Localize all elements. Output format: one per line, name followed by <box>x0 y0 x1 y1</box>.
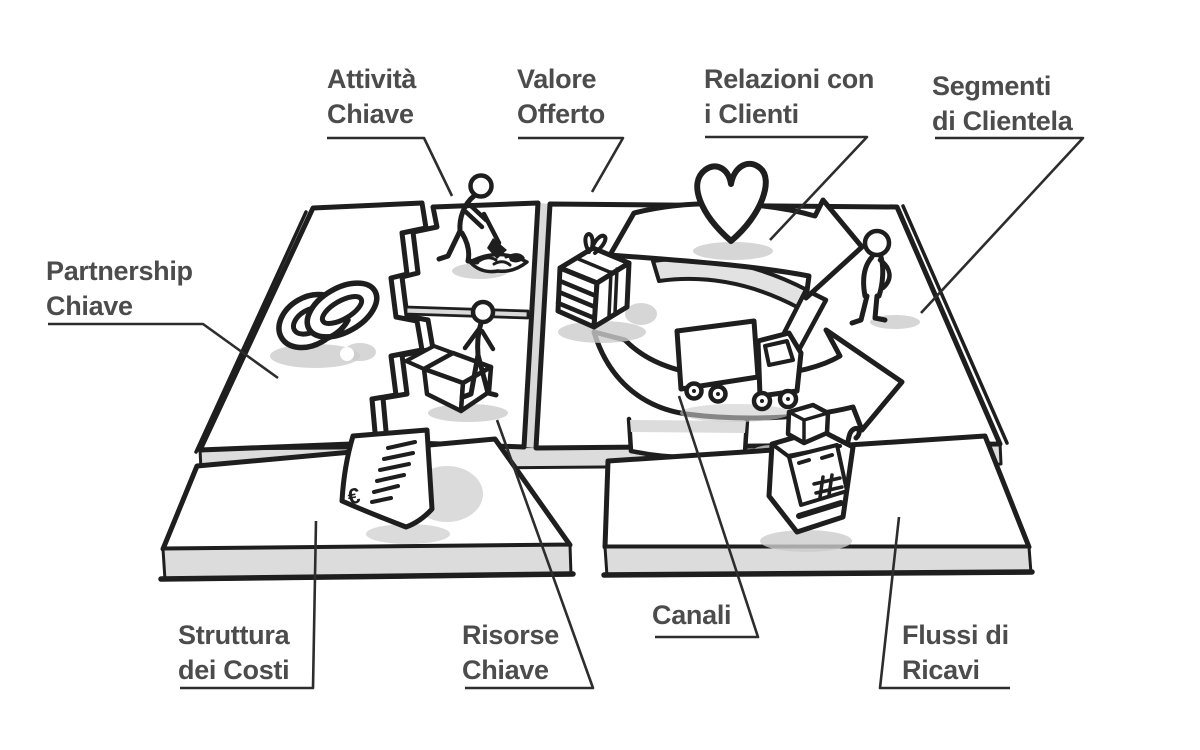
label-line: dei Costi <box>178 653 289 688</box>
label-valore-offerto: Valore Offerto <box>517 62 605 132</box>
label-line: Chiave <box>327 97 416 132</box>
label-line: Attività <box>327 62 416 97</box>
label-line: Risorse <box>462 618 559 653</box>
label-segmenti-clientela: Segmenti di Clientela <box>932 69 1072 139</box>
label-line: Struttura <box>178 618 289 653</box>
label-partnership-chiave: Partnership Chiave <box>46 254 193 324</box>
business-model-canvas-sketch: € <box>0 0 1200 750</box>
label-line: Valore <box>517 62 605 97</box>
label-struttura-costi: Struttura dei Costi <box>178 618 289 688</box>
label-line: Segmenti <box>932 69 1072 104</box>
delivery-truck-icon <box>677 321 801 422</box>
label-line: Offerto <box>517 97 605 132</box>
label-line: Ricavi <box>902 653 1009 688</box>
label-line: Chiave <box>462 653 559 688</box>
label-risorse-chiave: Risorse Chiave <box>462 618 559 688</box>
label-line: di Clientela <box>932 104 1072 139</box>
label-line: Canali <box>652 598 731 633</box>
label-attivita-chiave: Attività Chiave <box>327 62 416 132</box>
label-relazioni-clienti: Relazioni con i Clienti <box>704 62 874 132</box>
label-line: i Clienti <box>704 97 874 132</box>
leader-line-attivita <box>327 138 452 196</box>
label-line: Relazioni con <box>704 62 874 97</box>
leader-line-valore <box>518 138 623 192</box>
label-canali: Canali <box>652 598 731 633</box>
label-line: Flussi di <box>902 618 1009 653</box>
label-flussi-ricavi: Flussi di Ricavi <box>902 618 1009 688</box>
label-line: Chiave <box>46 289 193 324</box>
leader-line-segmenti <box>921 138 1083 313</box>
label-line: Partnership <box>46 254 193 289</box>
